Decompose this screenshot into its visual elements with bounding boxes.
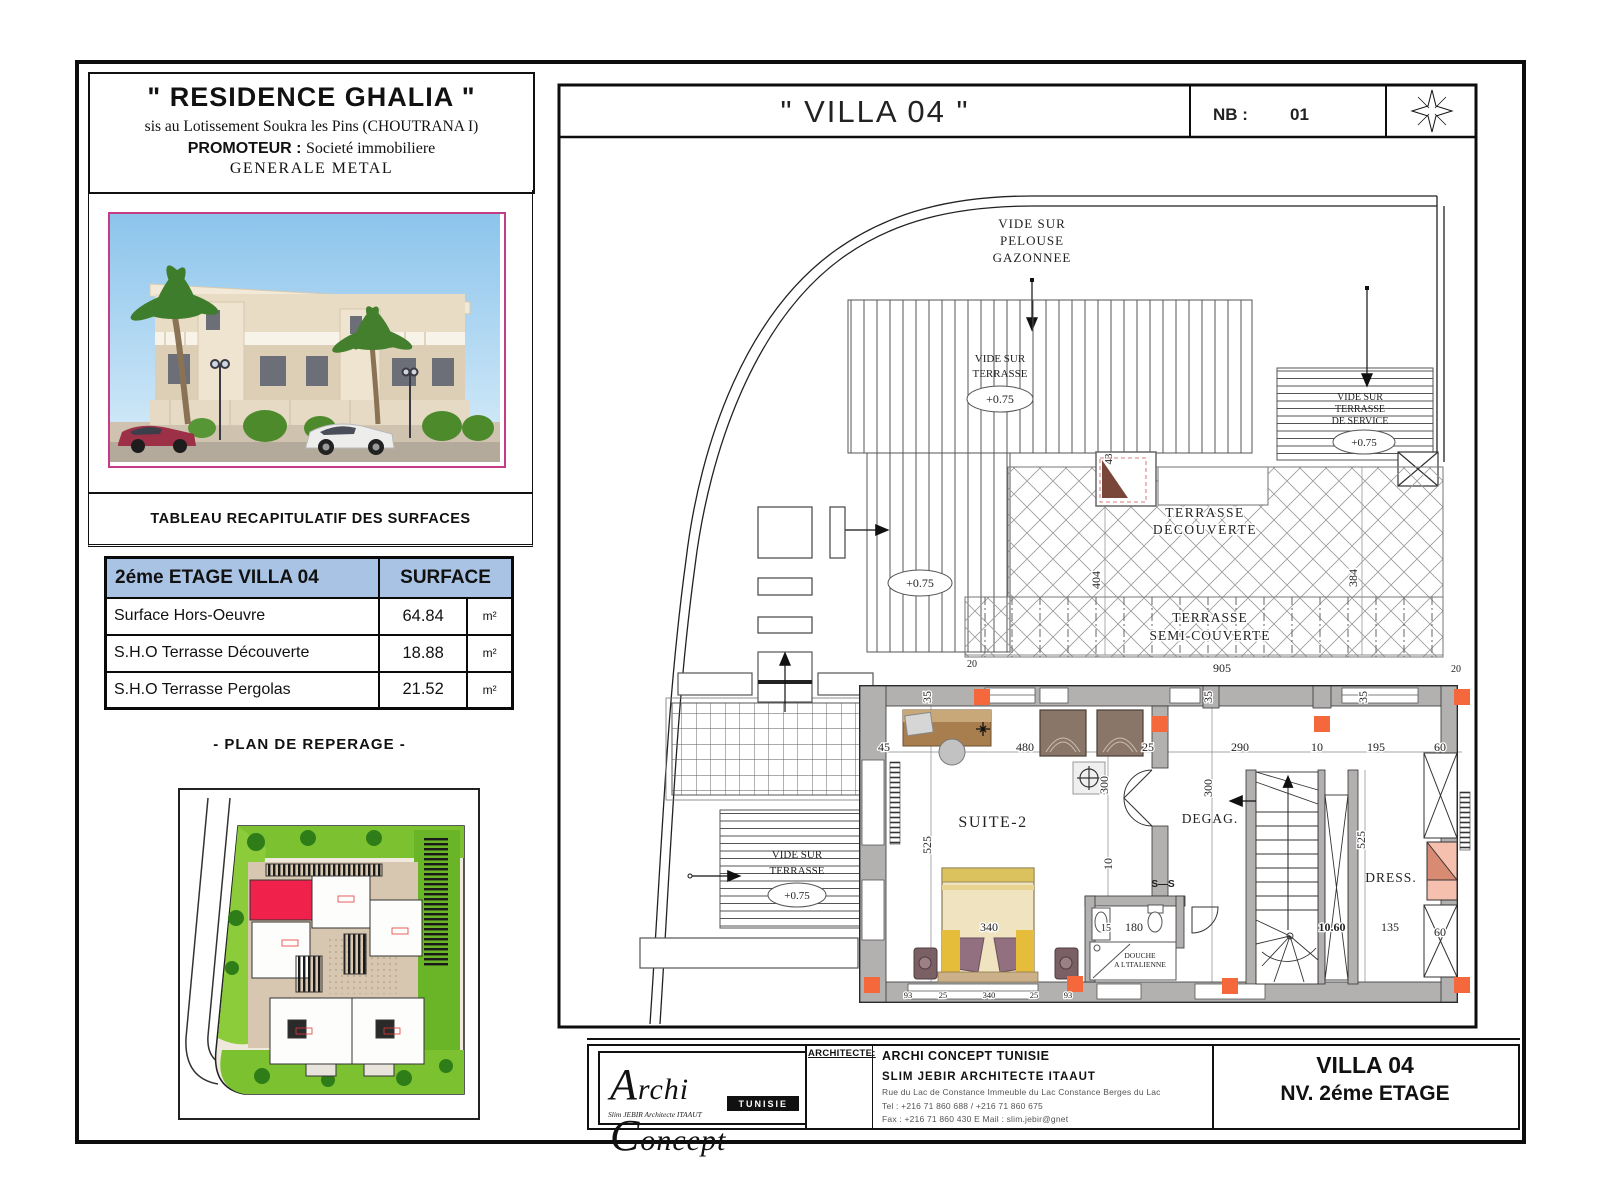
room-suite: SUITE-2 <box>958 814 1027 831</box>
svg-text:35: 35 <box>1201 691 1215 703</box>
svg-text:TERRASSE: TERRASSE <box>1165 505 1245 520</box>
level-marker-left: +0.75 <box>888 570 952 596</box>
project-title: " RESIDENCE GHALIA " <box>90 82 533 113</box>
table-row: S.H.O Terrasse Pergolas 21.52 m² <box>106 672 513 709</box>
svg-text:340: 340 <box>983 990 996 1000</box>
svg-text:10: 10 <box>1311 740 1323 754</box>
project-title-box: " RESIDENCE GHALIA " sis au Lotissement … <box>88 72 535 194</box>
svg-text:525: 525 <box>920 836 934 854</box>
dim-20: 20 <box>967 659 977 670</box>
section-marker: S—S <box>1151 879 1175 890</box>
svg-text:525: 525 <box>1354 831 1368 849</box>
svg-text:+0.75: +0.75 <box>986 392 1014 406</box>
vide-pelouse-label: VIDE SUR PELOUSE GAZONNEE <box>993 216 1072 265</box>
svg-text:135: 135 <box>1381 920 1399 934</box>
floor-plan: " VILLA 04 " NB : 01 VIDE SUR PELOUSE GA… <box>557 83 1479 1031</box>
highlighted-villa-04 <box>250 880 312 920</box>
building-render-photo <box>108 212 506 468</box>
grid-terrace <box>666 698 878 800</box>
dim-43: 43 <box>1103 453 1115 465</box>
promoter-label: PROMOTEUR : <box>188 140 302 157</box>
row-value: 64.84 <box>379 598 467 635</box>
row-value: 21.52 <box>379 672 467 709</box>
room-degag: DEGAG. <box>1182 811 1239 826</box>
svg-text:VIDE SUR: VIDE SUR <box>1337 392 1383 403</box>
svg-text:25: 25 <box>1142 740 1154 754</box>
site-plan-svg <box>178 788 480 1120</box>
nb-label: NB : <box>1213 105 1248 124</box>
svg-text:VIDE SUR: VIDE SUR <box>772 849 823 861</box>
dim-905: 905 <box>1213 661 1231 675</box>
dim-20: 20 <box>1451 664 1461 675</box>
svg-text:+0.75: +0.75 <box>1351 437 1377 449</box>
svg-text:35: 35 <box>920 691 934 703</box>
site-location-plan <box>178 788 480 1120</box>
svg-text:93: 93 <box>1064 990 1073 1000</box>
table-row: S.H.O Terrasse Découverte 18.88 m² <box>106 635 513 672</box>
drawing-title-villa: VILLA 04 <box>1212 1052 1518 1079</box>
svg-text:10: 10 <box>1101 858 1115 870</box>
row-unit: m² <box>467 672 512 709</box>
reperage-title: - PLAN DE REPERAGE - <box>88 736 531 753</box>
svg-text:TERRASSE: TERRASSE <box>1172 610 1248 625</box>
architect-address: Rue du Lac de Constance Immeuble du Lac … <box>882 1088 1202 1097</box>
svg-text:DOUCHE: DOUCHE <box>1124 951 1156 960</box>
dim-384: 384 <box>1346 569 1360 587</box>
architect-info: ARCHI CONCEPT TUNISIE SLIM JEBIR ARCHITE… <box>882 1050 1202 1124</box>
planter-bench <box>640 938 858 968</box>
row-unit: m² <box>467 598 512 635</box>
svg-text:TERRASSE: TERRASSE <box>1335 404 1385 415</box>
strip-top-rule <box>587 1038 1520 1040</box>
logo-subtext: Slim JEBIR Architecte ITAAUT <box>608 1110 702 1119</box>
surfaces-table: 2éme ETAGE VILLA 04 SURFACE Surface Hors… <box>104 556 514 710</box>
svg-text:45: 45 <box>878 740 890 754</box>
svg-text:10.60: 10.60 <box>1319 920 1346 934</box>
svg-text:VIDE SUR: VIDE SUR <box>998 216 1066 231</box>
dim-404: 404 <box>1089 571 1103 589</box>
firm-name: ARCHI CONCEPT TUNISIE <box>882 1050 1202 1063</box>
svg-text:PELOUSE: PELOUSE <box>1000 233 1064 248</box>
svg-text:+0.75: +0.75 <box>906 576 934 590</box>
svg-text:+0.75: +0.75 <box>784 890 810 902</box>
svg-text:340: 340 <box>980 920 998 934</box>
row-value: 18.88 <box>379 635 467 672</box>
svg-text:VIDE SUR: VIDE SUR <box>975 353 1026 365</box>
drawing-title: VILLA 04 NV. 2éme ETAGE <box>1212 1052 1518 1106</box>
svg-text:15: 15 <box>1101 923 1111 934</box>
svg-text:DECOUVERTE: DECOUVERTE <box>1153 522 1257 537</box>
svg-text:TERRASSE: TERRASSE <box>972 368 1027 380</box>
parking-bars <box>424 836 448 966</box>
svg-text:35: 35 <box>1356 691 1370 703</box>
surfaces-table-header: 2éme ETAGE VILLA 04 SURFACE <box>106 558 513 598</box>
building-render-svg <box>110 214 500 462</box>
stair-void <box>1325 795 1348 980</box>
svg-text:TERRASSE: TERRASSE <box>769 865 824 877</box>
row-unit: m² <box>467 635 512 672</box>
promoter-value: Societé immobiliere <box>306 140 435 157</box>
staircase <box>1256 772 1318 984</box>
svg-text:180: 180 <box>1125 920 1143 934</box>
col-surface: SURFACE <box>379 558 512 598</box>
svg-text:300: 300 <box>1201 779 1215 797</box>
terrasse-semi-couverte-area <box>965 597 1443 657</box>
col-floor: 2éme ETAGE VILLA 04 <box>106 558 380 598</box>
drawing-title-level: NV. 2éme ETAGE <box>1212 1082 1518 1106</box>
promoter-value2: GENERALE METAL <box>90 160 533 178</box>
row-label: S.H.O Terrasse Pergolas <box>106 672 380 709</box>
svg-text:25: 25 <box>939 990 948 1000</box>
svg-text:25: 25 <box>1030 990 1039 1000</box>
svg-text:300: 300 <box>1097 776 1111 794</box>
table-row: Surface Hors-Oeuvre 64.84 m² <box>106 598 513 635</box>
architect-label: ARCHITECTE: <box>808 1048 872 1059</box>
drawing-sheet: " RESIDENCE GHALIA " sis au Lotissement … <box>0 0 1600 1200</box>
svg-text:DE SERVICE: DE SERVICE <box>1332 416 1389 427</box>
svg-text:SEMI-COUVERTE: SEMI-COUVERTE <box>1150 628 1271 643</box>
architect-tel: Tel : +216 71 860 688 / +216 71 860 675 <box>882 1102 1202 1111</box>
svg-text:A L'ITALIENNE: A L'ITALIENNE <box>1114 960 1166 969</box>
svg-text:93: 93 <box>904 990 913 1000</box>
promoter-line: PROMOTEUR : Societé immobiliere <box>90 140 533 158</box>
plan-title: " VILLA 04 " <box>780 94 969 129</box>
room-dress: DRESS. <box>1365 870 1416 885</box>
row-label: Surface Hors-Oeuvre <box>106 598 380 635</box>
svg-text:60: 60 <box>1434 925 1446 939</box>
vide-terrasse-top <box>848 300 1252 453</box>
right-closets <box>1424 753 1457 977</box>
logo-badge: TUNISIE <box>727 1096 799 1111</box>
svg-text:60: 60 <box>1434 740 1446 754</box>
architect-fax: Fax : +216 71 860 430 E Mail : slim.jebi… <box>882 1115 1202 1124</box>
project-location: sis au Lotissement Soukra les Pins (CHOU… <box>90 118 533 136</box>
surfaces-band: TABLEAU RECAPITULATIF DES SURFACES <box>88 492 533 547</box>
row-label: S.H.O Terrasse Découverte <box>106 635 380 672</box>
svg-text:195: 195 <box>1367 740 1385 754</box>
svg-text:GAZONNEE: GAZONNEE <box>993 250 1072 265</box>
architect-name: SLIM JEBIR ARCHITECTE ITAAUT <box>882 1072 1202 1084</box>
svg-text:290: 290 <box>1231 740 1249 754</box>
svg-text:480: 480 <box>1016 740 1034 754</box>
architect-logo: Archi Concept TUNISIE Slim JEBIR Archite… <box>598 1051 807 1125</box>
nb-value: 01 <box>1290 105 1309 124</box>
